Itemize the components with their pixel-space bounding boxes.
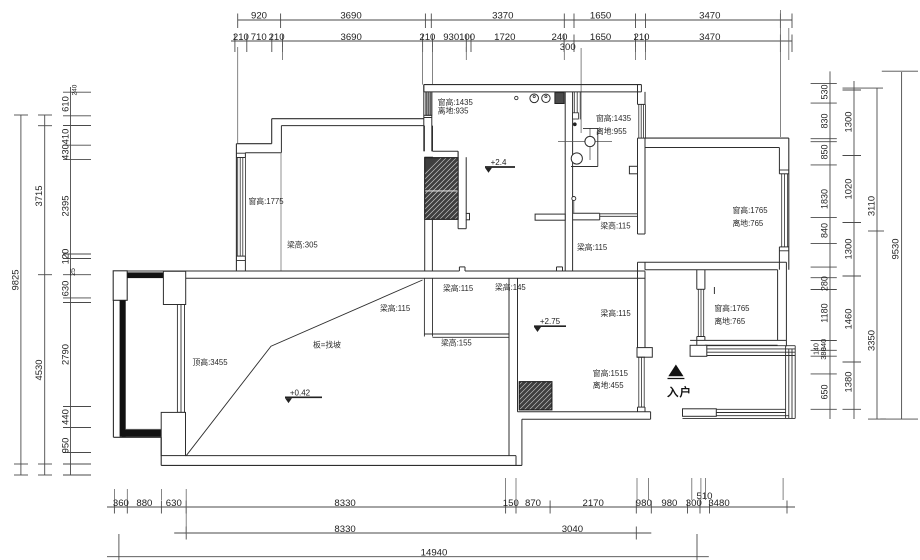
svg-text:离地:955: 离地:955	[596, 126, 627, 136]
svg-text:梁高:145: 梁高:145	[495, 282, 526, 292]
svg-text:870: 870	[525, 498, 541, 509]
svg-text:950: 950	[60, 438, 71, 454]
svg-text:窗高:1515: 窗高:1515	[593, 368, 629, 378]
svg-text:9530: 9530	[890, 239, 901, 260]
svg-text:1020: 1020	[843, 179, 854, 200]
svg-text:+2.75: +2.75	[540, 317, 561, 326]
svg-text:离地:935: 离地:935	[438, 106, 469, 116]
svg-text:210: 210	[633, 32, 649, 43]
svg-text:280: 280	[820, 276, 830, 291]
svg-text:3690: 3690	[340, 10, 361, 21]
svg-text:1380: 1380	[843, 372, 854, 393]
svg-text:14940: 14940	[421, 547, 448, 558]
svg-text:+0.42: +0.42	[290, 388, 311, 397]
svg-text:梁高:115: 梁高:115	[601, 308, 632, 318]
svg-text:980: 980	[636, 498, 652, 509]
svg-text:窗高:1435: 窗高:1435	[438, 97, 474, 107]
svg-text:离地:765: 离地:765	[733, 218, 764, 228]
svg-text:梁高:115: 梁高:115	[380, 303, 411, 313]
svg-text:梁高:115: 梁高:115	[600, 221, 631, 231]
svg-text:8330: 8330	[334, 524, 355, 535]
svg-text:510: 510	[696, 491, 712, 502]
svg-text:1300: 1300	[843, 112, 854, 133]
svg-text:710: 710	[251, 32, 267, 43]
svg-text:梁高:305: 梁高:305	[287, 240, 318, 250]
svg-text:530: 530	[820, 84, 830, 99]
svg-text:100: 100	[459, 32, 475, 43]
svg-text:梁高:115: 梁高:115	[443, 283, 474, 293]
svg-text:440: 440	[60, 409, 71, 425]
svg-text:150: 150	[503, 498, 519, 509]
svg-text:650: 650	[820, 384, 830, 399]
svg-text:1180: 1180	[820, 303, 830, 322]
svg-text:3715: 3715	[33, 186, 44, 207]
svg-text:880: 880	[136, 498, 152, 509]
svg-text:210: 210	[269, 32, 285, 43]
svg-text:410: 410	[60, 129, 71, 145]
svg-text:1300: 1300	[843, 239, 854, 260]
svg-text:630: 630	[60, 281, 71, 297]
svg-text:顶高:3455: 顶高:3455	[193, 357, 229, 367]
svg-text:120: 120	[60, 249, 71, 265]
svg-text:240: 240	[72, 84, 79, 95]
svg-text:板=找坡: 板=找坡	[313, 340, 341, 350]
svg-text:1650: 1650	[590, 32, 611, 43]
svg-text:210: 210	[419, 32, 435, 43]
svg-text:1460: 1460	[843, 309, 854, 330]
svg-text:1830: 1830	[820, 189, 830, 209]
svg-text:9825: 9825	[10, 270, 21, 291]
svg-text:2395: 2395	[60, 196, 71, 217]
svg-text:830: 830	[820, 113, 830, 128]
svg-text:3470: 3470	[699, 32, 720, 43]
svg-text:2790: 2790	[60, 344, 71, 365]
svg-text:210: 210	[233, 32, 249, 43]
svg-text:3110: 3110	[866, 196, 877, 216]
svg-text:630: 630	[166, 498, 182, 509]
svg-text:430: 430	[60, 144, 71, 160]
svg-text:+2.4: +2.4	[491, 158, 507, 167]
svg-text:300: 300	[560, 42, 576, 53]
svg-text:840: 840	[820, 223, 830, 238]
svg-text:3350: 3350	[866, 330, 877, 351]
svg-text:3690: 3690	[341, 32, 362, 43]
svg-text:8330: 8330	[334, 498, 355, 509]
svg-text:2170: 2170	[583, 498, 604, 509]
svg-text:25: 25	[70, 268, 77, 276]
svg-text:360: 360	[113, 498, 129, 509]
svg-text:离地:765: 离地:765	[714, 316, 745, 326]
svg-text:3040: 3040	[562, 524, 583, 535]
svg-text:窗高:1765: 窗高:1765	[733, 205, 769, 215]
svg-text:980: 980	[661, 498, 677, 509]
svg-text:930: 930	[443, 32, 459, 43]
svg-text:850: 850	[820, 144, 830, 159]
svg-text:140: 140	[814, 343, 821, 355]
svg-text:窗高:1765: 窗高:1765	[714, 303, 750, 313]
svg-text:梁高:155: 梁高:155	[441, 338, 472, 348]
svg-text:4530: 4530	[33, 360, 44, 381]
svg-text:920: 920	[251, 10, 267, 21]
svg-text:梁高:115: 梁高:115	[577, 242, 608, 252]
svg-text:窗高:1435: 窗高:1435	[596, 113, 632, 123]
svg-text:离地:455: 离地:455	[593, 380, 624, 390]
svg-text:入户: 入户	[667, 385, 692, 399]
svg-text:窗高:1775: 窗高:1775	[249, 196, 285, 206]
svg-text:3370: 3370	[492, 10, 513, 21]
svg-text:3470: 3470	[699, 10, 720, 21]
svg-text:1720: 1720	[494, 32, 515, 43]
svg-text:1650: 1650	[590, 10, 611, 21]
svg-text:610: 610	[60, 96, 71, 112]
